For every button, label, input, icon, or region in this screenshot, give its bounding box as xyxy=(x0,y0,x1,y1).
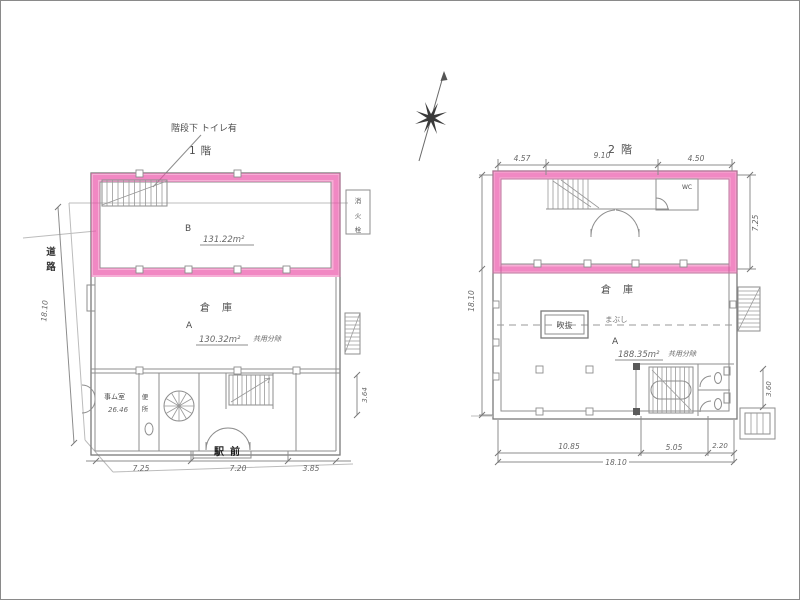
svg-text:路: 路 xyxy=(46,261,56,273)
floor1-exterior-ladder xyxy=(345,313,360,354)
floor2-bottom-dimension: 10.85 5.05 2.20 18.10 xyxy=(495,416,737,467)
floor1-main-stair xyxy=(102,180,167,206)
floor1-warehouse-label: 倉庫 xyxy=(200,301,244,314)
hydrant-box: 消 火 栓 xyxy=(346,190,370,234)
svg-text:4.50: 4.50 xyxy=(688,154,705,163)
svg-text:18.10: 18.10 xyxy=(39,300,49,322)
site-boundary xyxy=(23,203,353,472)
spiral-stair xyxy=(164,391,194,421)
floor2-double-doors xyxy=(591,210,639,237)
svg-text:3.64: 3.64 xyxy=(361,387,369,403)
office-door-arcs xyxy=(82,385,95,413)
svg-text:3.85: 3.85 xyxy=(303,464,320,473)
wc-small-label: WC xyxy=(682,184,692,191)
svg-text:10.85: 10.85 xyxy=(558,442,580,451)
floor2-room-a-area: 188.35m² xyxy=(618,350,660,360)
office-area: 26.46 xyxy=(108,406,129,414)
svg-text:消: 消 xyxy=(355,196,362,205)
room-b-area: 131.22m² xyxy=(203,235,245,245)
office-label: 事ム室 xyxy=(104,392,125,401)
floor1-plan: 階段下 トイレ有 1階 xyxy=(23,122,370,473)
svg-text:18.10: 18.10 xyxy=(467,290,476,312)
svg-text:栓: 栓 xyxy=(355,225,362,234)
floor1-stair-note: 階段下 トイレ有 xyxy=(171,122,237,134)
floor2-room-a-label: A xyxy=(612,337,619,347)
floor2-toilets xyxy=(698,364,730,416)
floor2-title: 2階 xyxy=(608,142,638,156)
floor2-left-dimension: 18.10 xyxy=(467,172,493,418)
svg-text:道: 道 xyxy=(46,246,56,258)
svg-text:所: 所 xyxy=(142,404,149,413)
svg-text:9.10: 9.10 xyxy=(594,151,611,160)
floor2-plan: 2階 xyxy=(467,142,775,467)
floor2-top-right-room: WC xyxy=(656,179,698,210)
svg-text:吹抜: 吹抜 xyxy=(557,320,573,330)
floor2-right-upper-dimension: 7.25 xyxy=(737,172,760,272)
road-label: 道 路 xyxy=(46,246,56,273)
floor2-right-lower-dimension: 3.60 xyxy=(760,366,773,410)
plan-drawing: 階段下 トイレ有 1階 xyxy=(1,1,799,599)
svg-text:5.05: 5.05 xyxy=(666,443,683,452)
svg-text:7.25: 7.25 xyxy=(751,214,760,231)
toilet-label: 便 所 xyxy=(142,392,149,413)
floor1-right-dimension: 3.64 xyxy=(354,372,369,418)
svg-text:4.57: 4.57 xyxy=(514,154,531,163)
svg-text:便: 便 xyxy=(142,392,149,401)
svg-text:3.60: 3.60 xyxy=(765,381,773,397)
svg-text:18.10: 18.10 xyxy=(605,458,627,467)
room-b-label: B xyxy=(185,224,191,234)
floor2-room-a-note: 共用分除 xyxy=(668,350,697,358)
floor2-exterior-steps xyxy=(740,408,775,439)
floor1-room-a-area: 130.32m² xyxy=(199,335,241,345)
front-stamp: 駅前 xyxy=(213,445,246,458)
svg-text:7.25: 7.25 xyxy=(133,464,150,473)
floor2-stair-arrival xyxy=(546,179,669,209)
floor1-lower-partitions xyxy=(139,373,296,451)
floor1-back-stair xyxy=(229,375,273,405)
svg-text:火: 火 xyxy=(355,212,362,220)
floor1-title: 1階 xyxy=(189,145,216,157)
toilet-fixture xyxy=(145,423,153,435)
svg-text:7.20: 7.20 xyxy=(230,464,247,473)
room-b-highlight xyxy=(96,178,337,273)
scanned-floor-plan-sheet: 階段下 トイレ有 1階 xyxy=(0,0,800,600)
floor2-warehouse-label: 倉庫 xyxy=(601,283,645,296)
north-arrow-icon xyxy=(415,71,448,161)
dashed-line-note: まぶし xyxy=(605,315,628,324)
floor1-room-a-note: 共用分除 xyxy=(253,335,282,343)
floor2-fire-escape xyxy=(738,287,760,331)
floor1-room-a-label: A xyxy=(186,321,193,331)
svg-text:2.20: 2.20 xyxy=(712,442,728,450)
